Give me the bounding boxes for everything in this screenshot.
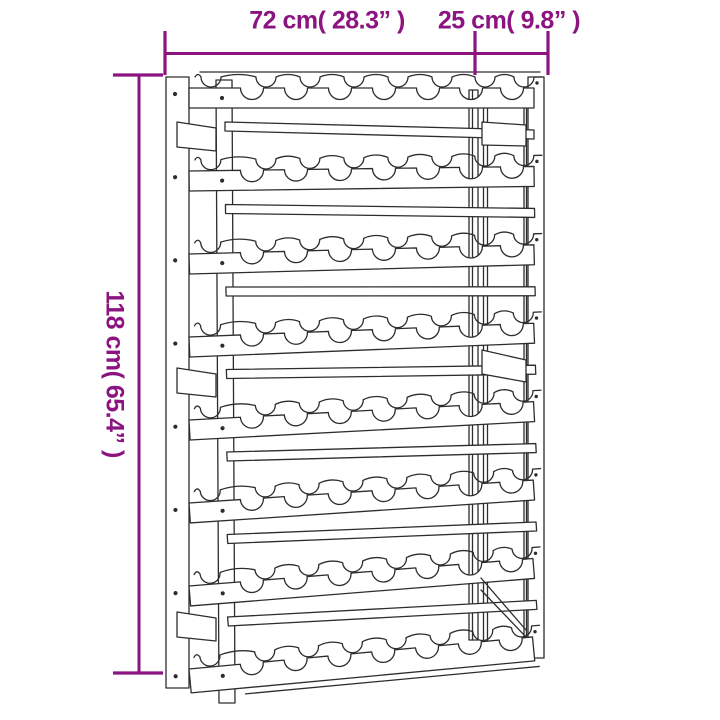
width-dimension-label: 72 cm( 28.3” ) — [249, 7, 405, 36]
screw-dot — [173, 92, 177, 96]
diagram-canvas: 72 cm( 28.3” ) 25 cm( 9.8” ) 118 cm( 65.… — [0, 0, 720, 720]
depth-dimension-label: 25 cm( 9.8” ) — [438, 7, 580, 36]
screw-dot — [535, 81, 538, 84]
height-dimension-label: 118 cm( 65.4” ) — [100, 290, 129, 458]
screw-dot — [220, 96, 224, 100]
